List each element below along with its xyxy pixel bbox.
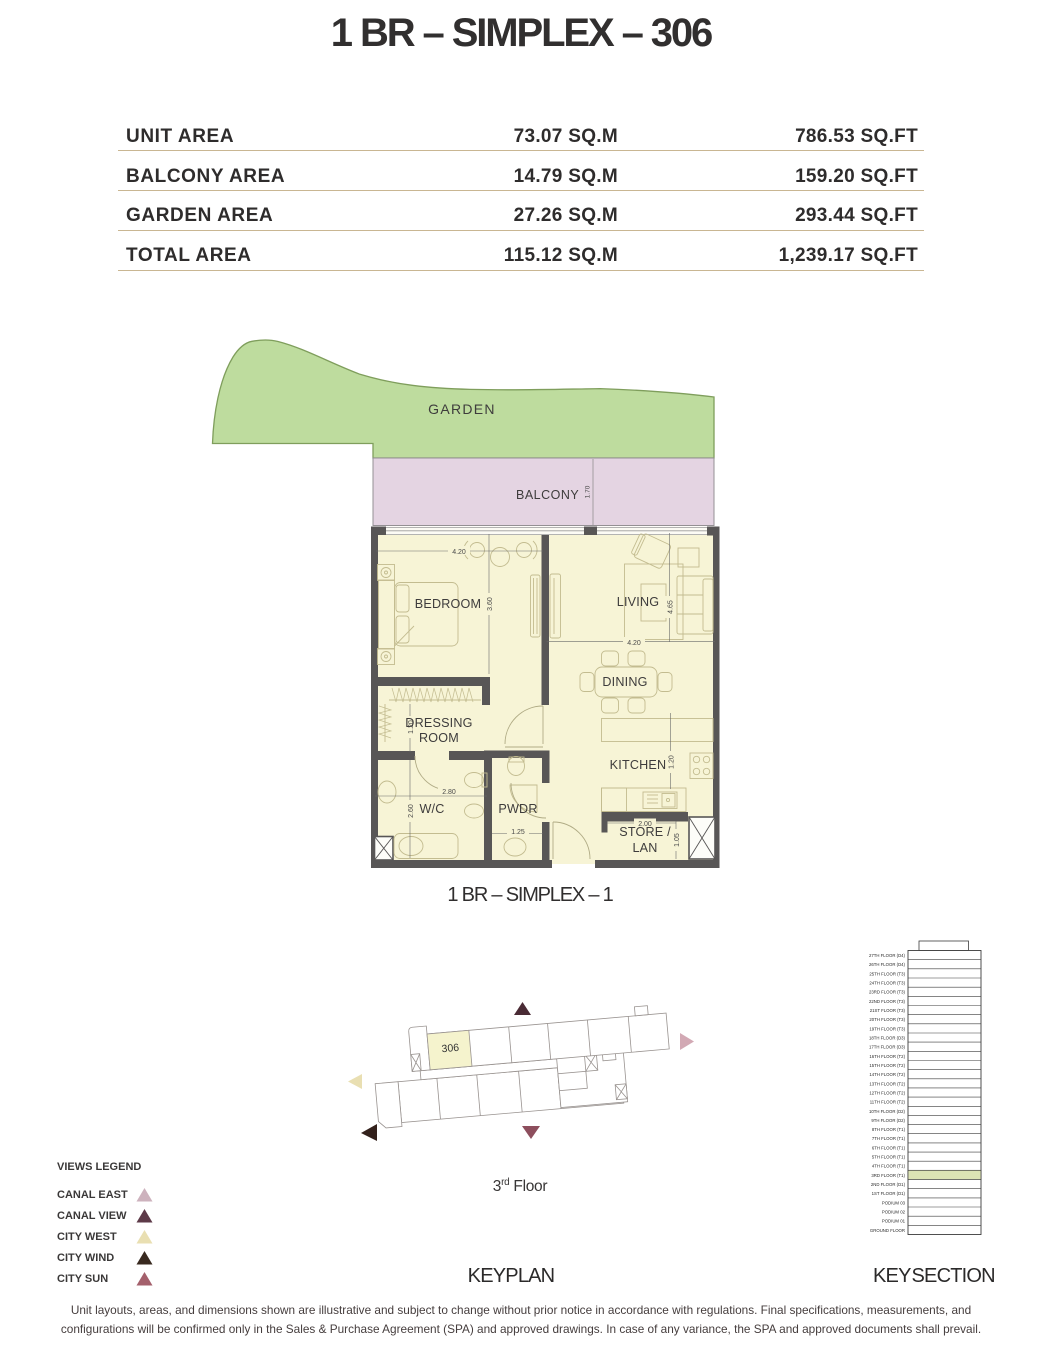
svg-text:DRESSING: DRESSING [405, 716, 472, 730]
svg-text:25TH FLOOR (T3): 25TH FLOOR (T3) [869, 971, 905, 976]
svg-text:GROUND FLOOR: GROUND FLOOR [870, 1228, 905, 1233]
svg-text:PWDR: PWDR [498, 802, 537, 816]
svg-text:DINING: DINING [602, 675, 647, 689]
svg-text:2ND FLOOR (D1): 2ND FLOOR (D1) [871, 1182, 906, 1187]
svg-text:7TH FLOOR (T1): 7TH FLOOR (T1) [872, 1136, 906, 1141]
svg-text:2.60: 2.60 [408, 804, 415, 818]
svg-text:PODIUM 01: PODIUM 01 [882, 1219, 906, 1224]
svg-text:13TH FLOOR (T2): 13TH FLOOR (T2) [869, 1081, 905, 1086]
svg-text:22ND FLOOR (T3): 22ND FLOOR (T3) [869, 999, 906, 1004]
svg-text:24TH FLOOR (T3): 24TH FLOOR (T3) [869, 981, 905, 986]
svg-text:306: 306 [441, 1042, 460, 1055]
svg-text:17TH FLOOR (D3): 17TH FLOOR (D3) [869, 1045, 906, 1050]
svg-text:1.25: 1.25 [511, 829, 525, 836]
svg-text:16TH FLOOR (T2): 16TH FLOOR (T2) [869, 1054, 905, 1059]
svg-text:26TH FLOOR (D4): 26TH FLOOR (D4) [869, 962, 906, 967]
svg-text:3.60: 3.60 [487, 597, 494, 611]
svg-text:23RD FLOOR (T3): 23RD FLOOR (T3) [869, 990, 906, 995]
svg-text:ROOM: ROOM [419, 731, 459, 745]
svg-text:2.80: 2.80 [442, 789, 456, 796]
svg-text:4.20: 4.20 [452, 549, 466, 556]
svg-text:27TH FLOOR (D4): 27TH FLOOR (D4) [869, 953, 906, 958]
svg-text:14TH FLOOR (T2): 14TH FLOOR (T2) [869, 1072, 905, 1077]
svg-text:KITCHEN: KITCHEN [610, 758, 667, 772]
svg-text:4TH FLOOR (T1): 4TH FLOOR (T1) [872, 1164, 906, 1169]
svg-text:1.70: 1.70 [585, 485, 592, 498]
svg-text:1.05: 1.05 [674, 833, 681, 847]
svg-text:GARDEN: GARDEN [428, 401, 496, 417]
svg-text:6TH FLOOR (T1): 6TH FLOOR (T1) [872, 1145, 906, 1150]
svg-text:4.65: 4.65 [668, 600, 675, 614]
svg-text:5TH FLOOR (T1): 5TH FLOOR (T1) [872, 1155, 906, 1160]
svg-text:4.20: 4.20 [627, 640, 641, 647]
svg-text:BALCONY: BALCONY [516, 488, 579, 502]
svg-text:12TH FLOOR (T2): 12TH FLOOR (T2) [869, 1090, 905, 1095]
svg-text:STORE /: STORE / [619, 825, 671, 839]
svg-text:8TH FLOOR (T1): 8TH FLOOR (T1) [872, 1127, 906, 1132]
svg-text:19TH FLOOR (T3): 19TH FLOOR (T3) [869, 1026, 905, 1031]
svg-text:18TH FLOOR (D3): 18TH FLOOR (D3) [869, 1036, 906, 1041]
svg-text:11TH FLOOR (T2): 11TH FLOOR (T2) [870, 1100, 906, 1105]
svg-text:10TH FLOOR (D2): 10TH FLOOR (D2) [869, 1109, 906, 1114]
svg-text:1ST FLOOR (D1): 1ST FLOOR (D1) [872, 1191, 906, 1196]
svg-text:21ST FLOOR (T3): 21ST FLOOR (T3) [870, 1008, 906, 1013]
svg-text:BEDROOM: BEDROOM [415, 597, 481, 611]
svg-text:PODIUM 03: PODIUM 03 [882, 1200, 906, 1205]
svg-text:LAN: LAN [632, 841, 657, 855]
svg-text:3RD FLOOR (T1): 3RD FLOOR (T1) [871, 1173, 905, 1178]
svg-text:LIVING: LIVING [617, 595, 660, 609]
svg-text:9TH FLOOR (D2): 9TH FLOOR (D2) [871, 1118, 905, 1123]
svg-text:W/C: W/C [419, 802, 444, 816]
svg-text:20TH FLOOR (T3): 20TH FLOOR (T3) [869, 1017, 905, 1022]
svg-text:1.20: 1.20 [669, 755, 676, 769]
svg-text:15TH FLOOR (T2): 15TH FLOOR (T2) [869, 1063, 905, 1068]
svg-text:PODIUM 02: PODIUM 02 [882, 1210, 906, 1215]
